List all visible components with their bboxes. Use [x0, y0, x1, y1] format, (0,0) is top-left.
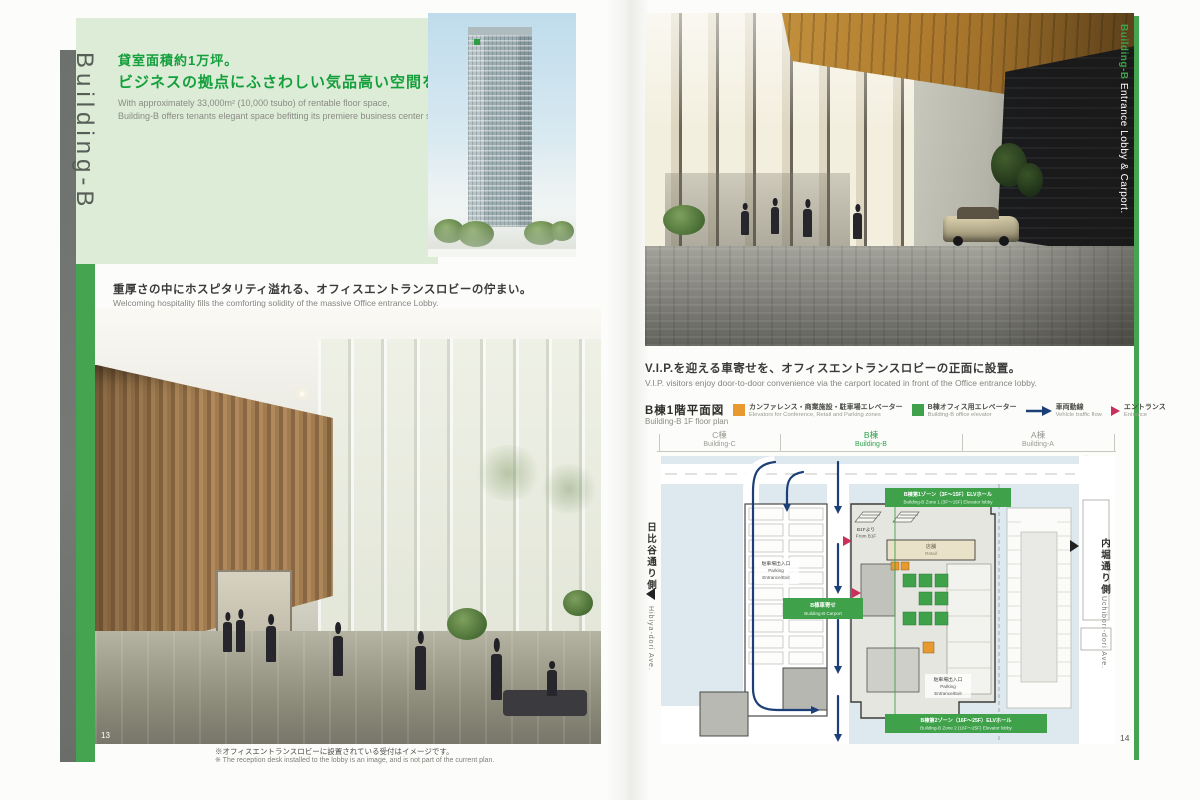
person-silhouette: [236, 620, 245, 652]
legend-item-vehicle-flow: 車両動線 Vehicle traffic flow: [1026, 403, 1102, 419]
potted-plant: [447, 608, 487, 640]
svg-text:駐車場出入口: 駐車場出入口: [762, 560, 791, 567]
person-silhouette: [333, 636, 343, 676]
svg-text:B1Fより: B1Fより: [857, 527, 875, 533]
header-building-c: C棟 Building-C: [659, 430, 780, 449]
svg-text:Entrance/Exit: Entrance/Exit: [934, 691, 962, 696]
legend-item-entrance: エントランス Entrance: [1111, 403, 1166, 419]
headline-en-line1: With approximately 33,000m² (10,000 tsub…: [118, 98, 390, 108]
svg-text:B棟車寄せ: B棟車寄せ: [810, 601, 836, 609]
lobby-heading-jp: 重厚さの中にホスピタリティ溢れる、オフィスエントランスロビーの佇まい。: [113, 281, 532, 297]
street-label-hibiya-en: Hibiya-dori Ave.: [647, 606, 654, 676]
right-edge-green-rule: [1134, 16, 1139, 760]
header-en: Building-A: [962, 440, 1114, 449]
west-direction-arrow: [646, 588, 655, 600]
legend-item-conference-elevators: カンファレンス・商業施設・駐車場エレベーター Elevators for Con…: [733, 403, 903, 419]
svg-text:B棟第1ゾーン（3F～15F）ELVホール: B棟第1ゾーン（3F～15F）ELVホール: [904, 490, 993, 498]
svg-text:店舗: 店舗: [926, 542, 936, 550]
headline-jp-line1: 貸室面積約1万坪。: [118, 50, 238, 69]
plan-title-en: Building-B 1F floor plan: [645, 417, 728, 426]
page-number-right: 14: [1120, 733, 1129, 743]
tower-facade: [468, 35, 532, 227]
zone1-label-box: B棟第1ゾーン（3F～15F）ELVホール Building-B Zone 1 …: [885, 488, 1011, 507]
carport-label-box: B棟車寄せ Building-B Carport: [783, 598, 863, 619]
header-building-a: A棟 Building-A: [962, 430, 1114, 449]
building-b-footprint: B1Fより From B1F 店舗 Retail 駐車場: [851, 492, 995, 718]
carport-heading-jp: V.I.P.を迎える車寄せを、オフィスエントランスロビーの正面に設置。: [645, 360, 1021, 376]
legend-item-office-elevator: B棟オフィス用エレベーター Building-B office elevator: [912, 403, 1017, 419]
legend-jp: エントランス: [1124, 403, 1166, 412]
legend-en: Vehicle traffic flow: [1056, 412, 1102, 419]
plan-legend: カンファレンス・商業施設・駐車場エレベーター Elevators for Con…: [733, 403, 1166, 419]
legend-en: Building-B office elevator: [928, 412, 1017, 419]
photo-edge-section-label: Building-B Entrance Lobby & Carport.: [1118, 24, 1129, 249]
header-jp: A棟: [962, 430, 1114, 440]
header-en: Building-B: [780, 440, 962, 449]
office-lobby-rendering-image: 13: [95, 308, 601, 744]
brochure-spread: Building-B 貸室面積約1万坪。 ビジネスの拠点にふさわしい気品高い空間…: [0, 0, 1200, 800]
sidebar-section-title: Building-B: [70, 52, 98, 262]
legend-en: Elevators for Conference, Retail and Par…: [749, 412, 903, 419]
east-direction-arrow: [1070, 540, 1079, 552]
from-b1f-label: B1Fより From B1F: [856, 527, 877, 539]
page-number-left: 13: [101, 731, 110, 740]
legend-jp: カンファレンス・商業施設・駐車場エレベーター: [749, 403, 903, 412]
person-silhouette: [223, 622, 232, 652]
svg-text:B棟第2ゾーン（16F～25F）ELVホール: B棟第2ゾーン（16F～25F）ELVホール: [920, 716, 1012, 724]
svg-text:Retail: Retail: [925, 551, 937, 556]
legend-en: Entrance: [1124, 412, 1166, 419]
zone2-label-box: B棟第2ゾーン（16F～25F）ELVホール Building-B Zone 2…: [885, 714, 1047, 733]
header-building-b: B棟 Building-B: [780, 430, 962, 449]
photo-vignette: [645, 13, 1134, 346]
person-silhouette: [415, 646, 426, 690]
carport-heading-en: V.I.P. visitors enjoy door-to-door conve…: [645, 378, 1037, 388]
floor-plan: 駐車場出入口 Parking Entrance/Exit B1Fより From …: [655, 452, 1115, 747]
potted-plant: [563, 590, 593, 616]
green-square-icon: [912, 404, 924, 416]
svg-text:Parking: Parking: [940, 684, 956, 689]
edge-label-caption: Entrance Lobby & Carport.: [1118, 80, 1129, 214]
header-jp: C棟: [659, 430, 780, 440]
lobby-sofa: [503, 690, 587, 716]
person-silhouette: [547, 670, 557, 696]
svg-text:Entrance/Exit: Entrance/Exit: [762, 575, 790, 580]
lobby-heading-en: Welcoming hospitality fills the comforti…: [113, 298, 439, 308]
outside-greenery: [539, 464, 599, 514]
outside-greenery: [473, 445, 543, 501]
plan-title-jp: B棟1階平面図: [645, 402, 724, 418]
tower-logo-mark: [474, 39, 480, 45]
street-label-uchibori-en: Uchibori-dori Ave.: [1100, 596, 1107, 672]
person-silhouette: [491, 654, 502, 700]
glass-curtain-wall: [318, 339, 601, 653]
stone-floor: [95, 631, 601, 744]
svg-text:Parking: Parking: [768, 568, 784, 573]
header-jp: B棟: [780, 430, 962, 440]
header-en: Building-C: [659, 440, 780, 449]
svg-text:駐車場出入口: 駐車場出入口: [934, 676, 963, 683]
plan-building-headers: C棟 Building-C B棟 Building-B A棟 Building-…: [657, 430, 1116, 452]
person-silhouette: [266, 626, 276, 662]
header-tick: [1114, 434, 1115, 451]
legend-jp: B棟オフィス用エレベーター: [928, 403, 1017, 412]
orange-square-icon: [733, 404, 745, 416]
red-triangle-icon: [1111, 406, 1120, 416]
parking-entrance-label-south: 駐車場出入口 Parking Entrance/Exit: [925, 674, 971, 698]
page-gutter: [606, 0, 650, 800]
tower-rendering-image: [428, 13, 576, 257]
headline-en-line2: Building-B offers tenants elegant space …: [118, 111, 453, 121]
svg-text:Building-B Carport: Building-B Carport: [804, 611, 842, 616]
photo-note-en: ※ The reception desk installed to the lo…: [215, 756, 494, 764]
tower-base-podium: [428, 215, 576, 249]
svg-text:Building-B Zone 2 (16F～25F) El: Building-B Zone 2 (16F～25F) Elevator lob…: [920, 726, 1012, 731]
retail-block: 店舗 Retail: [887, 540, 975, 560]
svg-text:From B1F: From B1F: [856, 534, 877, 539]
legend-jp: 車両動線: [1056, 403, 1102, 412]
left-green-strip: [76, 264, 95, 762]
edge-label-building: Building-B: [1118, 24, 1129, 80]
blue-arrow-icon: [1026, 405, 1052, 417]
svg-text:Building-B Zone 1 (3F～15F) Ele: Building-B Zone 1 (3F～15F) Elevator lobb…: [903, 500, 993, 505]
ceiling-light: [300, 392, 304, 396]
carport-rendering-image: [645, 13, 1134, 346]
